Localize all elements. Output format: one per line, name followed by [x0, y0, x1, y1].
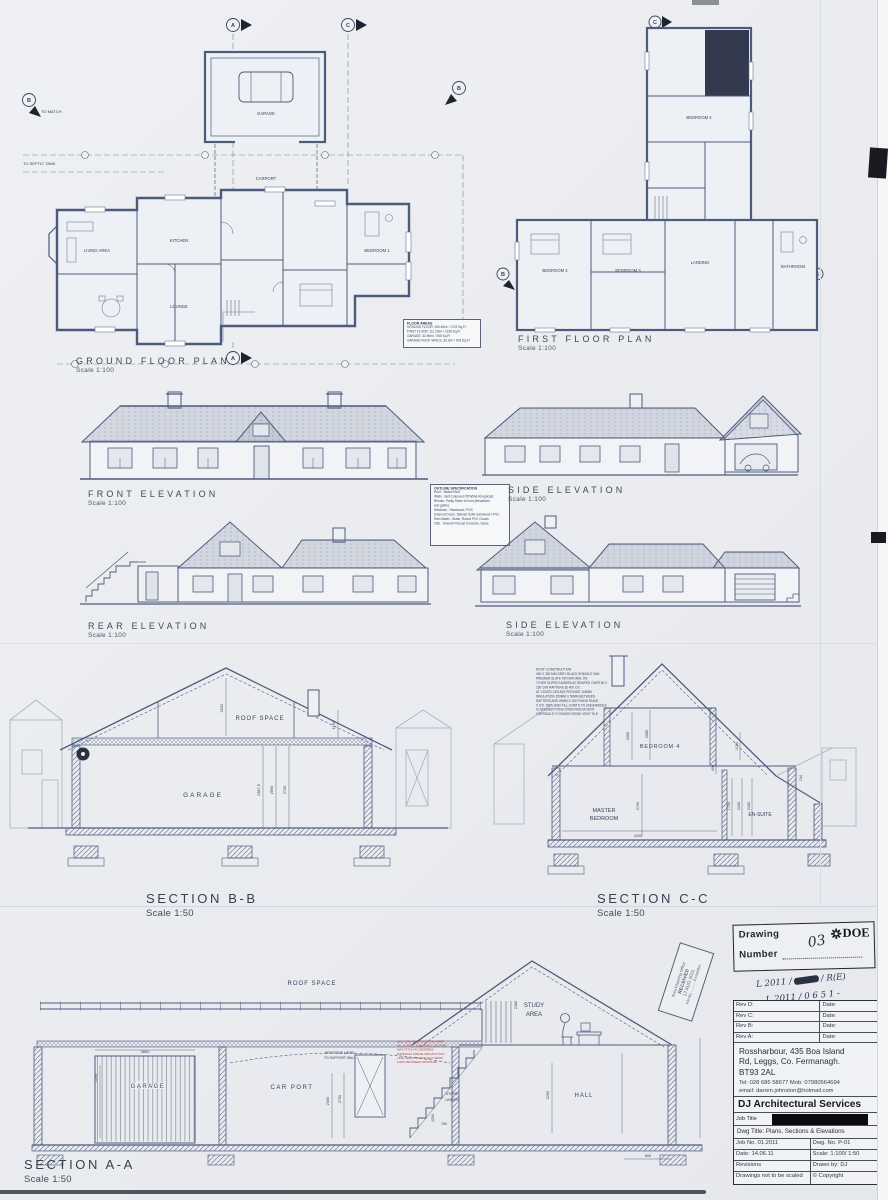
footer-row: Drawings not to be scaled © Copyright — [734, 1172, 877, 1184]
phone-line: Tel: 028 686 58677 Mob: 07980564694 — [739, 1080, 872, 1086]
bb-structure — [28, 668, 448, 866]
label-landing: LANDING — [691, 260, 710, 265]
first-floor-plan-caption: FIRST FLOOR PLAN Scale 1:100 — [518, 334, 655, 352]
roof-construction-note: ROOF CONSTRUCTION 400 X 250 MM GREY BLAC… — [536, 668, 640, 766]
marker-a-bottom: A — [231, 356, 235, 362]
marker-b-right: B — [457, 86, 461, 92]
cc-dim: 134 — [799, 775, 803, 781]
rev-row: Rev C: Date: — [734, 1012, 877, 1023]
section-aa-title: SECTION A-A — [24, 1157, 135, 1172]
aa-dim: 2200 — [546, 1091, 550, 1099]
label-to-match: TO MATCH — [41, 109, 62, 114]
house-outline — [49, 190, 409, 344]
drawing-number-stamp: Drawing Number 03 DOE — [732, 921, 875, 971]
front-elevation-drawing — [78, 386, 430, 486]
aa-store-label-2: UNDER — [445, 1098, 459, 1102]
doe-text: DOE — [842, 925, 869, 941]
drawing-number-label-2: Number — [739, 949, 778, 961]
section-aa-scale: Scale 1:50 — [24, 1174, 135, 1185]
scan-artifact — [871, 532, 886, 543]
scribble-redaction — [794, 975, 820, 985]
cc-ensuite-label: EN-SUITE — [748, 812, 772, 818]
aa-hall-label: HALL — [574, 1093, 593, 1099]
rev-label: Rev C: — [734, 1012, 819, 1022]
bb-roof-space-label: ROOF SPACE — [236, 716, 285, 722]
garage-block — [205, 52, 325, 208]
drawing-number-dotted-line — [782, 957, 862, 960]
label-kitchen: KITCHEN — [170, 238, 188, 243]
side-elevation1-drawing — [480, 380, 802, 484]
cc-master-label-2: BEDROOM — [590, 816, 619, 822]
address-line3: BT93 2AL — [739, 1068, 872, 1078]
side-elevation2-caption: SIDE ELEVATION Scale 1:100 — [506, 620, 624, 638]
marker-c-top: C — [346, 23, 350, 29]
job-title-row: Job Title — [734, 1113, 877, 1126]
roof-note-line: OVERSAILS 'G' RANGE RIDGE VENT TILE — [536, 713, 640, 717]
front-elevation-shapes — [80, 392, 428, 479]
aa-dim: 2300 — [326, 1097, 330, 1105]
bb-labels: ROOF SPACE GARAGE 2342 1150 2387.5 2590 … — [183, 703, 336, 799]
rev-label: Rev D: — [734, 1001, 819, 1011]
section-bb-title: SECTION B-B — [146, 891, 258, 906]
bb-dim: 2590 — [270, 786, 274, 794]
rear-elevation-drawing — [78, 506, 435, 618]
ffp-title: FIRST FLOOR PLAN — [518, 334, 655, 344]
bb-dim: 2342 — [219, 703, 224, 713]
date-value: Date: 14.06.11 — [734, 1150, 810, 1160]
hw1-pre: L 2011 / — [756, 977, 793, 990]
aa-dim: 760 — [441, 1122, 447, 1126]
bb-dim: 1150 — [331, 720, 336, 729]
company-name: DJ Architectural Services — [734, 1097, 865, 1112]
doe-crest-icon — [830, 928, 841, 939]
drawn-by: Drawn by: DJ — [810, 1161, 877, 1171]
aa-study-label-2: AREA — [526, 1012, 542, 1018]
rev-row: Rev D: Date: — [734, 1001, 877, 1012]
sheet-edge — [877, 0, 888, 1200]
dwg-title: Dwg Title: Plans, Sections & Elevations — [734, 1126, 848, 1138]
side-elevation2-title: SIDE ELEVATION — [506, 620, 624, 630]
label-living-area: LIVING AREA — [84, 248, 110, 253]
job-title-redaction — [772, 1114, 868, 1125]
label-bedroom2: BEDROOM 2 — [542, 268, 568, 273]
ffp-marker-b-left: B — [501, 272, 505, 278]
aa-dim: 1200 — [431, 1114, 435, 1122]
copyright-note: © Copyright — [810, 1172, 877, 1184]
scan-artifact — [692, 0, 719, 5]
hw1-post: / R(E) — [820, 972, 846, 984]
job-no: Job No. 01.2011 — [734, 1139, 810, 1149]
doe-stamp: DOE — [830, 925, 869, 941]
cc-dim: 1150 — [735, 742, 739, 750]
aa-keystone-label-1: KEYSTONE LINTEL — [325, 1051, 356, 1055]
company-row: DJ Architectural Services — [734, 1097, 877, 1113]
rev-row: Rev B: Date: — [734, 1022, 877, 1033]
ground-floor-plan-caption: GROUND FLOOR PLAN Scale 1:100 — [76, 356, 230, 374]
section-cc-scale: Scale 1:50 — [597, 908, 710, 919]
revisions-label: Revisions — [734, 1161, 810, 1171]
cc-dim: 2085 — [645, 730, 649, 738]
marker-a-top: A — [231, 23, 235, 29]
label-bedroom1: BEDROOM 1 — [364, 248, 390, 253]
rear-elevation-shapes — [80, 522, 431, 604]
bb-garage-label: GARAGE — [183, 792, 223, 799]
first-floor-plan-drawing: C B B BEDROOM 2 BEDROOM 3 — [495, 12, 825, 342]
label-lounge: LOUNGE — [170, 304, 188, 309]
job-title-label: Job Title — [736, 1116, 757, 1122]
jobno-row: Job No. 01.2011 Dwg. No. P-01 — [734, 1139, 877, 1150]
aa-carport-label: CAR PORT — [271, 1085, 314, 1091]
drawing-number-value: 03 — [807, 932, 827, 951]
fold-crease-vertical — [820, 0, 821, 905]
aa-dim: 3800 — [141, 1049, 151, 1054]
rev-label: Rev B: — [734, 1022, 819, 1032]
label-bedroom4-plan: BEDROOM 4 — [686, 115, 712, 120]
label-carport-plan: CARPORT — [256, 176, 277, 181]
fold-crease-horizontal — [0, 906, 888, 907]
label-bathroom: BATHROOM — [781, 264, 805, 269]
section-bb-drawing: ROOF SPACE GARAGE 2342 1150 2387.5 2590 … — [8, 650, 453, 892]
aa-structure — [32, 961, 702, 1165]
rev-row: Rev A: Date: — [734, 1033, 877, 1044]
ffp-marker-c: C — [653, 20, 657, 26]
label-to-septic: TO SEPTIC TANK — [23, 161, 56, 166]
aa-dim: 600 — [645, 1154, 651, 1158]
cc-dim: 2400 — [747, 802, 751, 810]
aa-dim: 2700 — [338, 1095, 342, 1103]
aa-garage-label: GARAGE — [131, 1084, 166, 1090]
cc-dim: 400 — [711, 765, 715, 771]
handwritten-ref-1: L 2011 // R(E) — [756, 972, 847, 990]
plan-notes: TO MATCH TO SEPTIC TANK — [23, 109, 62, 166]
email-line: email: darren.johnston@hotmail.com — [739, 1088, 872, 1094]
cc-dim: 2200 — [737, 802, 741, 810]
front-elevation-title: FRONT ELEVATION — [88, 489, 219, 499]
stair-note-red: MIN. CLR HEADROOM 2M OVER ALL STAIRS: 22… — [397, 1040, 453, 1089]
cc-bedroom4-label: BEDROOM 4 — [640, 744, 680, 750]
address-block: Rossharbour, 435 Boa Island Rd, Leggs, C… — [734, 1043, 877, 1097]
section-cc-caption: SECTION C-C Scale 1:50 — [597, 891, 710, 919]
rear-elevation-caption: REAR ELEVATION Scale 1:100 — [88, 621, 210, 639]
rev-date: Date: — [819, 1022, 877, 1032]
section-bb-caption: SECTION B-B Scale 1:50 — [146, 891, 258, 919]
side-elevation1-shapes — [482, 394, 801, 475]
ffp-scale: Scale 1:100 — [518, 345, 655, 352]
side-elevation1-scale: Scale 1:100 — [508, 496, 626, 503]
section-cc-title: SECTION C-C — [597, 891, 710, 906]
rev-label: Rev A: — [734, 1033, 819, 1043]
label-garage-plan: GARAGE — [257, 111, 275, 116]
rev-date: Date: — [819, 1033, 877, 1043]
aa-roof-space-label: ROOF SPACE — [288, 981, 337, 987]
cc-dim: 1750 — [727, 802, 731, 810]
title-block: Rev D: Date: Rev C: Date: Rev B: Date: R… — [733, 1000, 878, 1185]
floor-areas-line: GARAGE ROOF SPACE: 83.9m² / 903 Sq.Ft — [407, 339, 477, 343]
gfp-scale: Scale 1:100 — [76, 367, 230, 374]
aa-study-label-1: STUDY — [524, 1003, 544, 1009]
ffp-walls — [517, 28, 817, 330]
date-row: Date: 14.06.11 Scale: 1:100/ 1:50 — [734, 1150, 877, 1161]
side-elevation2-drawing — [473, 512, 805, 616]
scan-artifact — [868, 147, 888, 178]
side-elevation2-shapes — [475, 516, 801, 606]
side-elevation2-scale: Scale 1:100 — [506, 631, 624, 638]
gfp-title: GROUND FLOOR PLAN — [76, 356, 230, 366]
bb-dim: 2700 — [283, 786, 287, 794]
front-elevation-caption: FRONT ELEVATION Scale 1:100 — [88, 489, 219, 507]
fold-crease-horizontal-2 — [0, 643, 888, 644]
section-aa-caption: SECTION A-A Scale 1:50 — [24, 1157, 135, 1185]
rear-elevation-scale: Scale 1:100 — [88, 632, 210, 639]
drawing-sheet: A C B B A — [0, 0, 888, 1200]
side-elevation1-caption: SIDE ELEVATION Scale 1:100 — [508, 485, 626, 503]
aa-dim: 2460 — [514, 1001, 518, 1009]
dwg-no: Dwg. No. P-01 — [810, 1139, 877, 1149]
cc-dim: 2700 — [636, 802, 640, 810]
rear-elevation-title: REAR ELEVATION — [88, 621, 210, 631]
aa-keystone-label-2: TO SUPPORT WALL — [324, 1056, 356, 1060]
section-aa-drawing: ROOF SPACE GARAGE CAR PORT HALL STUDY AR… — [12, 933, 707, 1170]
address-line2: Rd, Leggs, Co. Fermanagh. — [739, 1057, 872, 1067]
scan-bottom-edge — [0, 1190, 706, 1194]
bb-dim: 2387.5 — [257, 784, 261, 796]
marker-b-left: B — [27, 98, 31, 104]
revisions-row: Revisions Drawn by: DJ — [734, 1161, 877, 1172]
cc-dim: 4200 — [634, 834, 642, 838]
ground-floor-plan-drawing: A C B B A — [15, 12, 470, 377]
dwg-title-row: Dwg Title: Plans, Sections & Elevations — [734, 1126, 877, 1139]
no-scale-note: Drawings not to be scaled — [734, 1172, 810, 1184]
section-bb-scale: Scale 1:50 — [146, 908, 258, 919]
label-bedroom3: BEDROOM 3 — [615, 268, 641, 273]
floor-areas-box: FLOOR AREAS GROUND FLOOR: 160.49m² / 172… — [403, 319, 481, 348]
aa-dim: 1100 — [94, 1074, 98, 1082]
aa-store-label-1: STORE — [445, 1092, 458, 1096]
drawing-number-label-1: Drawing — [739, 929, 780, 941]
cc-master-label-1: MASTER — [593, 808, 616, 814]
stair-note-line: GAPS BETWEEN SPINDLES — [397, 1061, 453, 1065]
address-line1: Rossharbour, 435 Boa Island — [739, 1047, 872, 1057]
rev-date: Date: — [819, 1012, 877, 1022]
rev-date: Date: — [819, 1001, 877, 1011]
side-elevation1-title: SIDE ELEVATION — [508, 485, 626, 495]
scale-value: Scale: 1:100/ 1:50 — [810, 1150, 877, 1160]
